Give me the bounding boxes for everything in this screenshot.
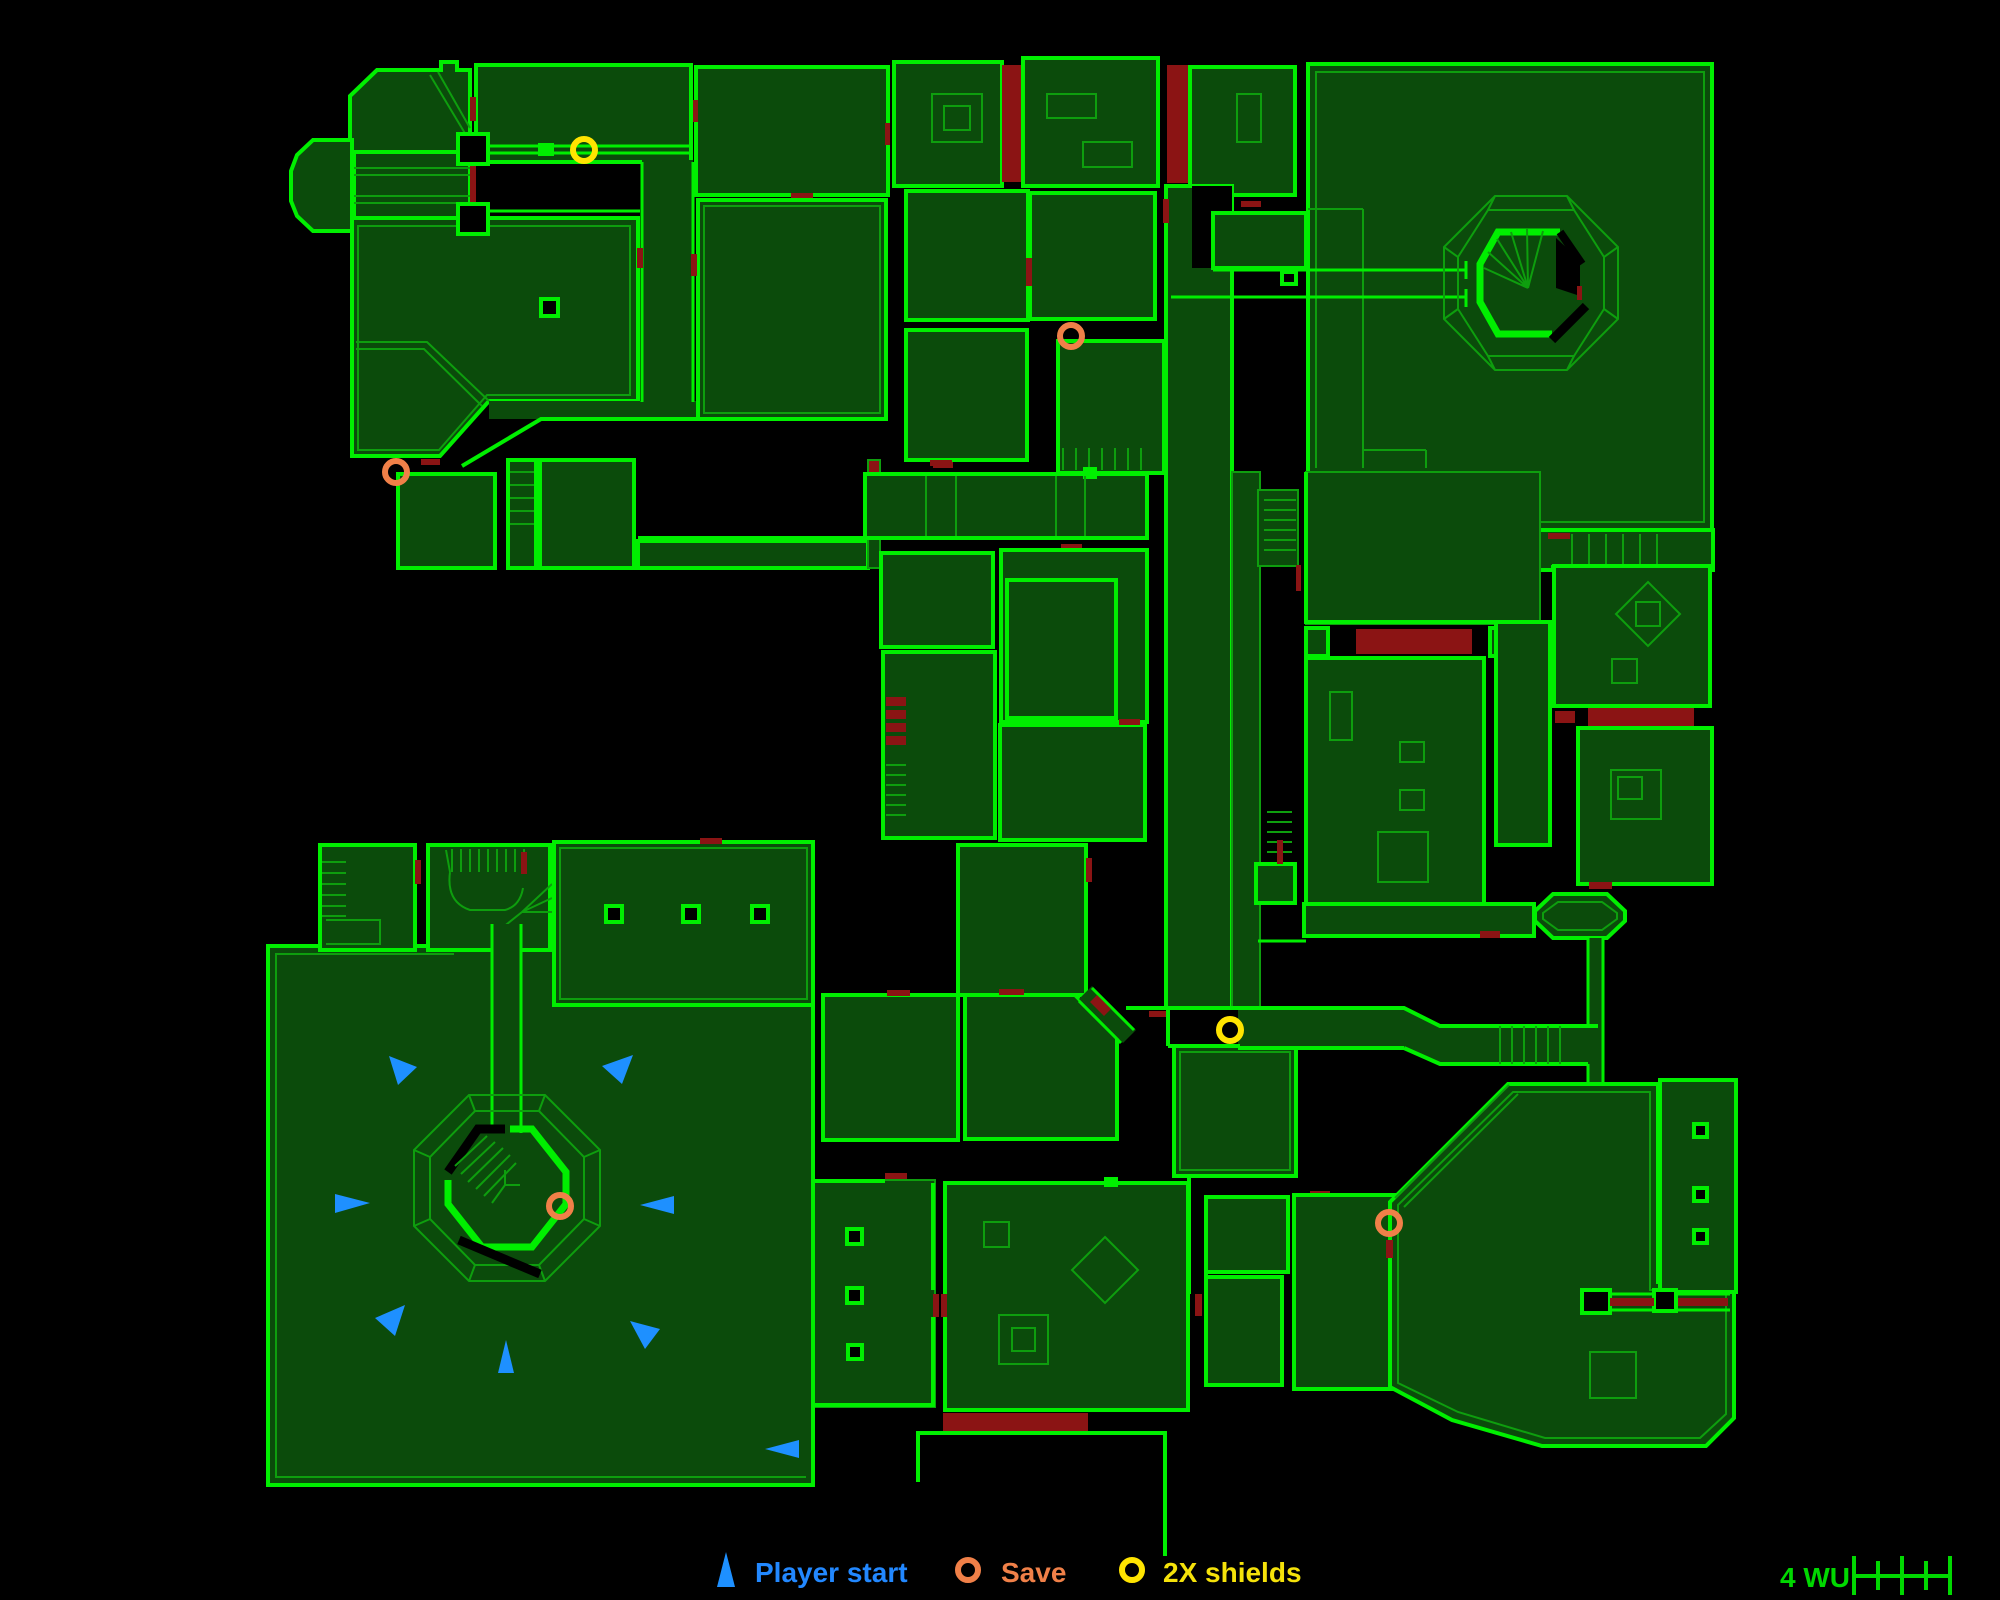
svg-text:Save: Save [1001,1557,1066,1588]
svg-text:Player start: Player start [755,1557,908,1588]
svg-text:2X shields: 2X shields [1163,1557,1302,1588]
svg-text:4 WU: 4 WU [1780,1562,1850,1593]
